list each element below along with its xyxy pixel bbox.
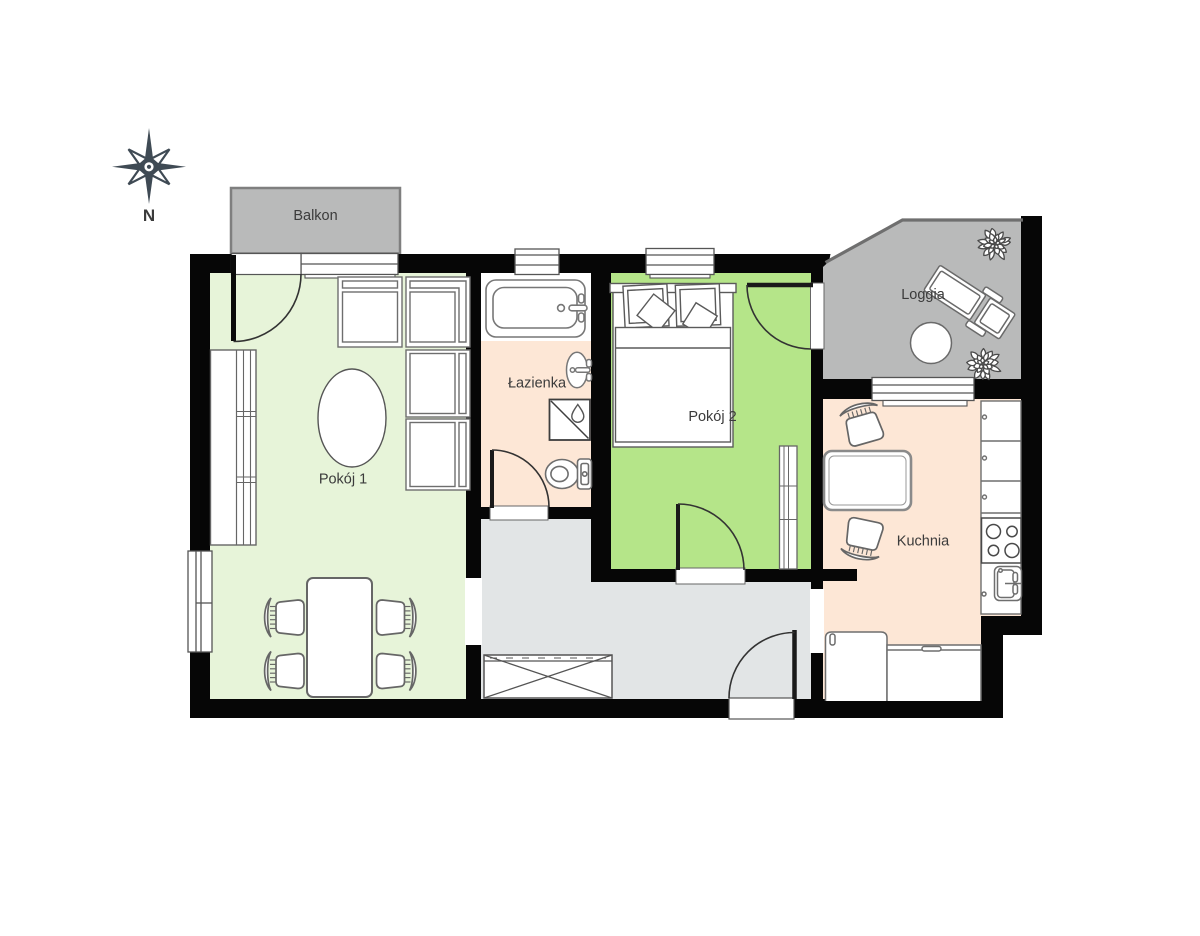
svg-text:Balkon: Balkon: [293, 208, 337, 224]
svg-text:Łazienka: Łazienka: [508, 376, 567, 392]
svg-text:Kuchnia: Kuchnia: [897, 534, 950, 550]
svg-text:Pokój 2: Pokój 2: [688, 409, 736, 425]
svg-text:Pokój 1: Pokój 1: [319, 472, 367, 488]
svg-text:Loggia: Loggia: [901, 287, 945, 303]
svg-text:N: N: [143, 206, 155, 225]
